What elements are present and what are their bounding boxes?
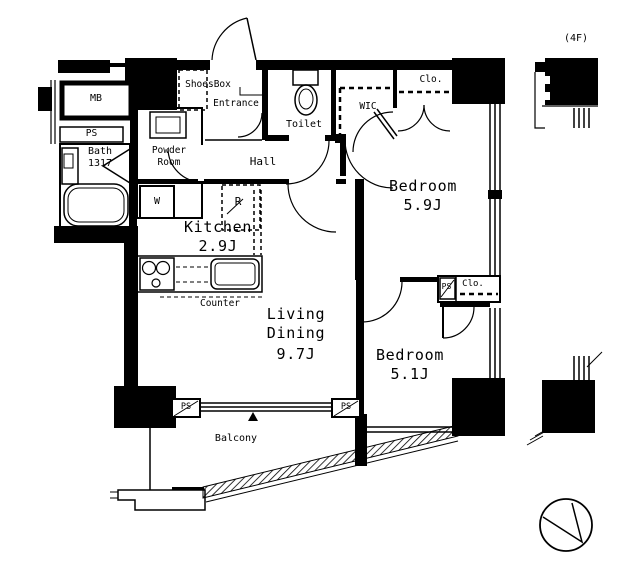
balcony-step-box [118, 490, 205, 510]
closet-mid-door-arc [443, 307, 474, 338]
bathtub-icon [64, 184, 128, 226]
entrance-hall-door-arc [238, 113, 262, 137]
wic-label: WIC [348, 101, 388, 112]
bedroom-small-door-arc [362, 282, 402, 322]
window-bedroom-small [490, 308, 500, 378]
bedroom-small-label: Bedroom [368, 346, 452, 365]
living-size: 9.7J [258, 345, 334, 364]
pipe-space-balcony-right-label: PS [332, 402, 360, 412]
bedroom-large-label: Bedroom [383, 177, 463, 196]
washer-label: W [140, 186, 174, 218]
bedroom-large-size: 5.9J [383, 196, 463, 215]
pipe-space-mid-label: PS [438, 282, 455, 292]
wic-door-arc [353, 112, 393, 152]
meter-box-label: MB [61, 93, 131, 105]
entrance-label: Entrance [208, 98, 264, 109]
toilet-label: Toilet [282, 119, 326, 131]
bath-label: Bath [76, 146, 124, 158]
kitchen-size: 2.9J [180, 237, 256, 256]
entrance-door-leaf [247, 18, 256, 60]
powder-room-label-1: Powder [140, 145, 198, 156]
closet-top-label: Clo. [409, 74, 453, 85]
counter-label: Counter [194, 298, 246, 309]
pipe-space-left-label: PS [60, 128, 123, 139]
closet-top-door-left-arc [398, 105, 424, 131]
refrigerator-label: R [230, 195, 246, 208]
bath-size: 1317 [76, 158, 124, 170]
window-living-balcony [200, 401, 332, 413]
floor-plan: MB PS Bath 1317 Powder Room ShoesBox Ent… [0, 0, 640, 569]
plan-linework [0, 0, 640, 569]
floor-tag: (4F) [554, 33, 598, 45]
toilet-icon [293, 70, 318, 85]
closet-mid-label: Clo. [456, 279, 490, 290]
hall-label: Hall [245, 155, 281, 168]
vanity-sink-icon [150, 112, 186, 138]
window-center-marker [248, 412, 258, 421]
living-label-2: Dining [258, 324, 334, 343]
closet-top-door-right-arc [424, 105, 450, 131]
wic-angled-wall [374, 109, 397, 139]
living-label-1: Living [258, 305, 334, 324]
bedroom-small-size: 5.1J [368, 365, 452, 384]
balcony-label: Balcony [206, 433, 266, 445]
toilet-door-arc [286, 141, 329, 184]
powder-room-label-2: Room [140, 157, 198, 168]
keyplan-lower [527, 352, 602, 445]
shoesbox-label: ShoesBox [180, 79, 236, 90]
keyplan-upper [535, 58, 598, 128]
pipe-space-balcony-left-label: PS [172, 402, 200, 412]
entrance-door-arc [212, 18, 247, 60]
kitchen-label: Kitchen [180, 218, 256, 237]
living-door-arc [288, 184, 336, 232]
compass-icon [540, 499, 592, 551]
